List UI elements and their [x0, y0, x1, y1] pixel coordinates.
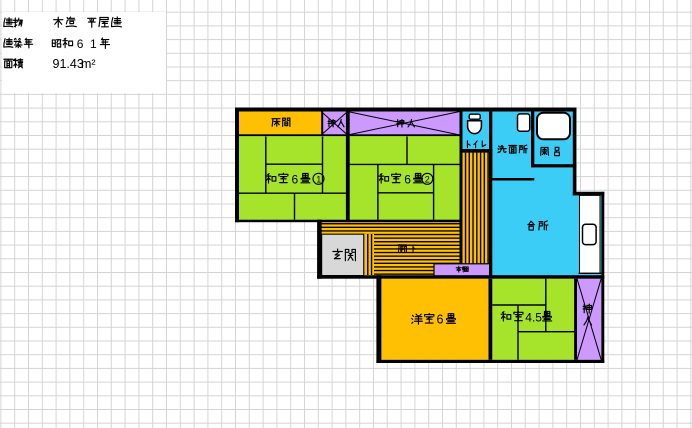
svg-text:6: 6: [404, 172, 411, 186]
svg-text:2: 2: [425, 175, 430, 185]
svg-text:6: 6: [437, 312, 444, 326]
svg-text:4.5: 4.5: [525, 311, 542, 325]
svg-text:91.43: 91.43: [53, 57, 84, 71]
svg-text:6: 6: [292, 172, 299, 186]
svg-text:1: 1: [316, 175, 321, 185]
svg-text:m²: m²: [81, 57, 96, 71]
svg-text:61: 61: [77, 37, 103, 51]
